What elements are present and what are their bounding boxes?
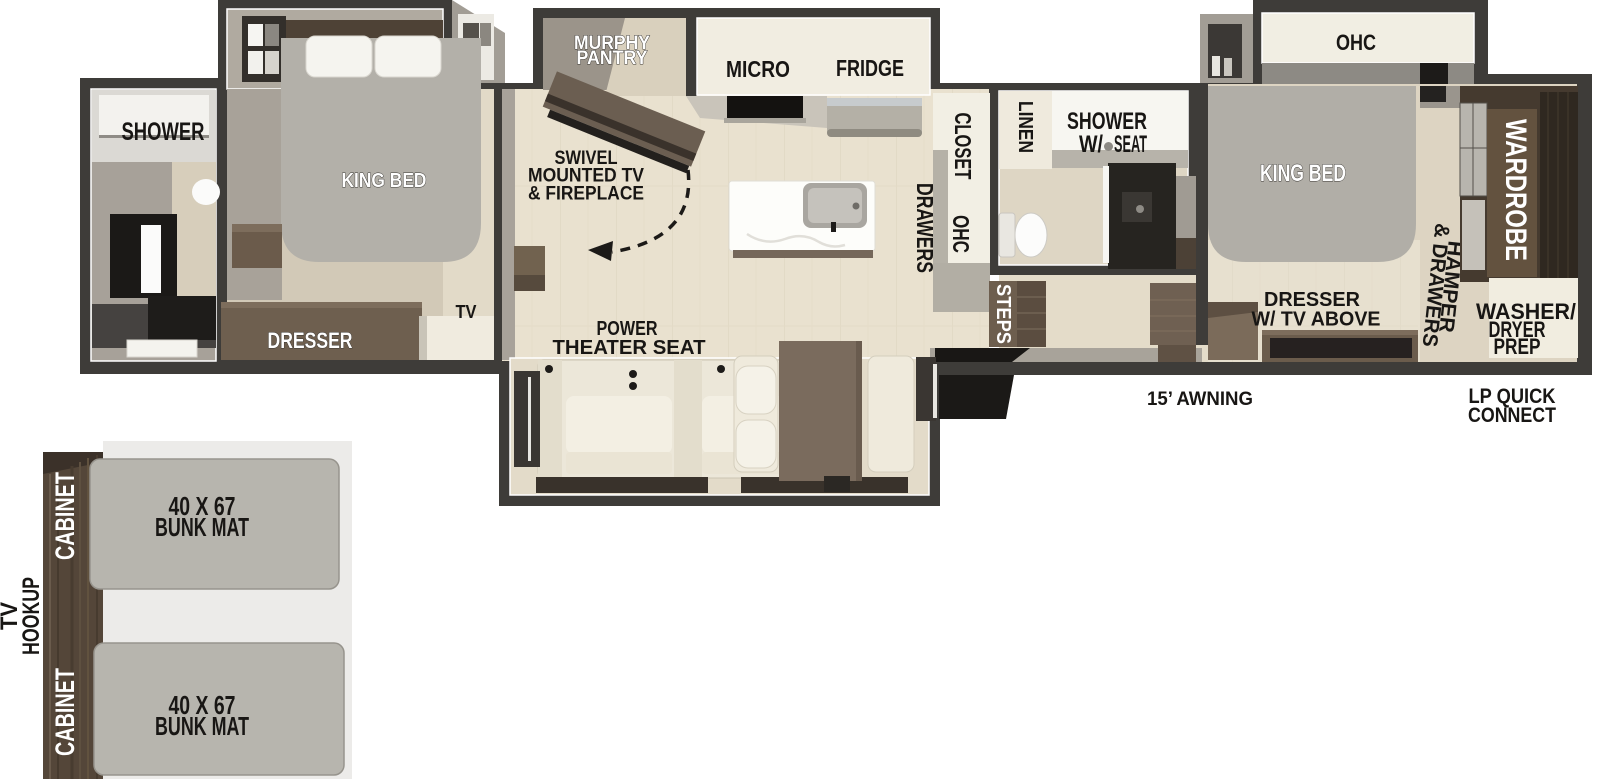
- svg-text:BUNK MAT: BUNK MAT: [155, 711, 249, 741]
- svg-text:SHOWER: SHOWER: [122, 118, 205, 146]
- svg-text:SEAT: SEAT: [1114, 131, 1147, 158]
- svg-text:WARDROBE: WARDROBE: [1499, 119, 1532, 261]
- svg-text:DRESSER: DRESSER: [268, 328, 353, 353]
- svg-text:DRAWERS: DRAWERS: [912, 183, 938, 273]
- svg-text:HOOKUP: HOOKUP: [18, 577, 45, 655]
- svg-text:CONNECT: CONNECT: [1468, 404, 1556, 427]
- svg-text:KING BED: KING BED: [1260, 160, 1346, 187]
- svg-text:OHC: OHC: [1336, 30, 1376, 55]
- svg-text:BUNK MAT: BUNK MAT: [155, 512, 249, 542]
- svg-text:OHC: OHC: [948, 215, 974, 253]
- svg-text:KING BED: KING BED: [342, 170, 427, 192]
- svg-text:MICRO: MICRO: [726, 56, 790, 82]
- svg-text:TV: TV: [456, 302, 477, 322]
- svg-text:CABINET: CABINET: [50, 668, 80, 756]
- svg-text:& FIREPLACE: & FIREPLACE: [528, 184, 644, 205]
- svg-text:CABINET: CABINET: [50, 472, 80, 560]
- svg-text:W/ TV ABOVE: W/ TV ABOVE: [1252, 309, 1381, 331]
- svg-text:PREP: PREP: [1494, 334, 1541, 359]
- svg-text:FRIDGE: FRIDGE: [836, 55, 904, 81]
- svg-text:STEPS: STEPS: [992, 284, 1014, 344]
- svg-text:15’ AWNING: 15’ AWNING: [1147, 389, 1253, 410]
- svg-text:W/: W/: [1079, 131, 1103, 158]
- svg-text:THEATER SEAT: THEATER SEAT: [553, 337, 706, 359]
- svg-text:CLOSET: CLOSET: [950, 113, 976, 180]
- svg-text:LINEN: LINEN: [1014, 101, 1036, 153]
- svg-text:PANTRY: PANTRY: [577, 48, 648, 69]
